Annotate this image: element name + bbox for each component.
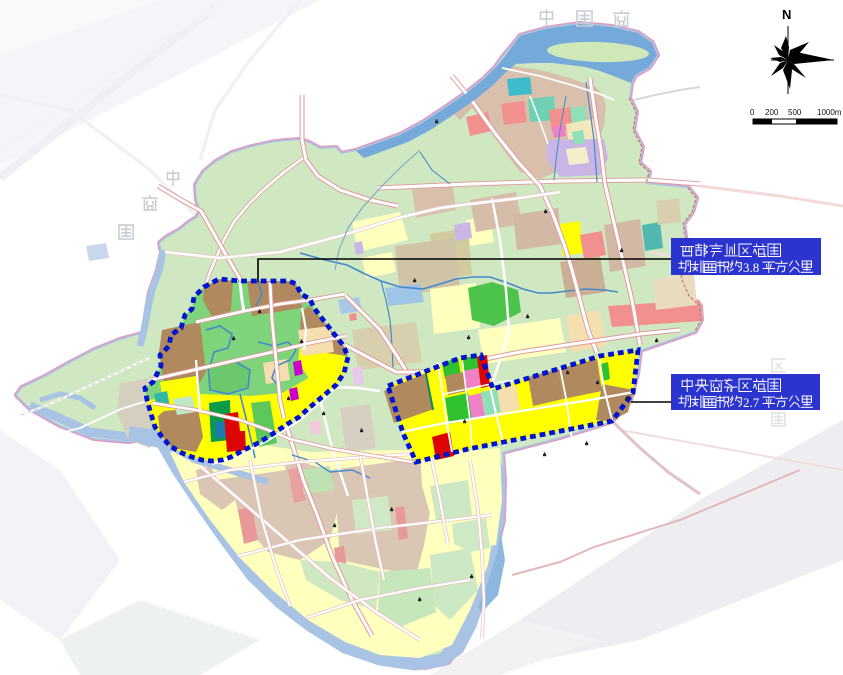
svg-text:200: 200 [765, 108, 779, 117]
svg-text:3.8: 3.8 [743, 260, 759, 275]
svg-text:2.7: 2.7 [743, 395, 760, 410]
svg-text:N: N [782, 7, 791, 22]
svg-text:0: 0 [750, 108, 755, 117]
svg-text:500: 500 [788, 108, 802, 117]
svg-text:1000m: 1000m [817, 108, 842, 117]
